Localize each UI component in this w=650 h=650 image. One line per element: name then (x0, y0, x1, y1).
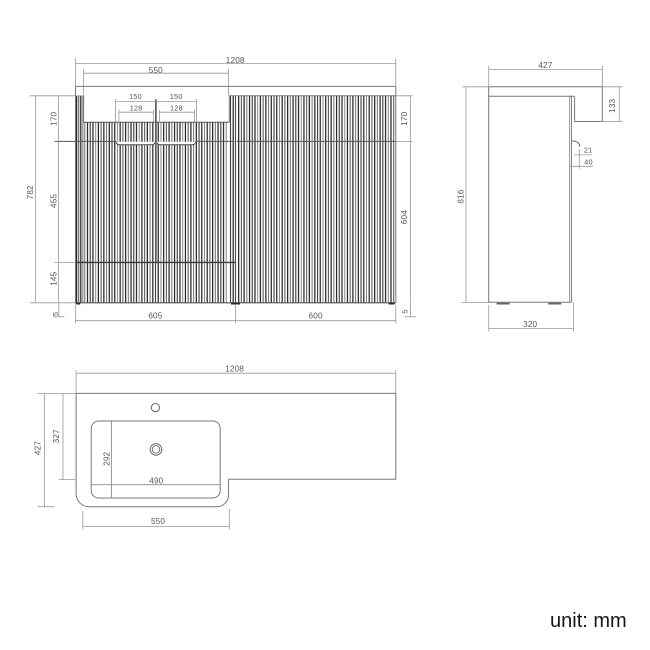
svg-text:292: 292 (102, 451, 111, 465)
svg-text:5: 5 (51, 312, 60, 316)
svg-text:21: 21 (584, 145, 593, 154)
svg-text:170: 170 (400, 111, 409, 125)
svg-text:150: 150 (170, 92, 183, 101)
svg-text:unit: mm: unit: mm (550, 610, 627, 632)
svg-text:550: 550 (151, 517, 165, 526)
svg-text:427: 427 (34, 441, 43, 455)
svg-text:604: 604 (400, 210, 409, 224)
svg-text:550: 550 (149, 66, 163, 75)
svg-text:605: 605 (148, 311, 162, 320)
svg-text:1208: 1208 (225, 364, 244, 373)
svg-text:145: 145 (49, 271, 58, 285)
svg-text:782: 782 (26, 185, 35, 199)
svg-text:170: 170 (49, 111, 58, 125)
svg-text:5: 5 (400, 309, 409, 313)
svg-text:150: 150 (129, 92, 142, 101)
svg-text:327: 327 (52, 429, 61, 443)
svg-text:427: 427 (538, 61, 552, 70)
svg-text:128: 128 (170, 103, 183, 112)
svg-text:40: 40 (584, 158, 593, 167)
svg-text:490: 490 (149, 476, 163, 485)
svg-text:1208: 1208 (226, 56, 245, 65)
svg-text:320: 320 (523, 320, 537, 329)
svg-text:128: 128 (130, 103, 143, 112)
svg-text:133: 133 (608, 98, 617, 112)
svg-text:455: 455 (49, 194, 58, 208)
svg-text:816: 816 (457, 189, 466, 203)
svg-text:600: 600 (309, 311, 323, 320)
